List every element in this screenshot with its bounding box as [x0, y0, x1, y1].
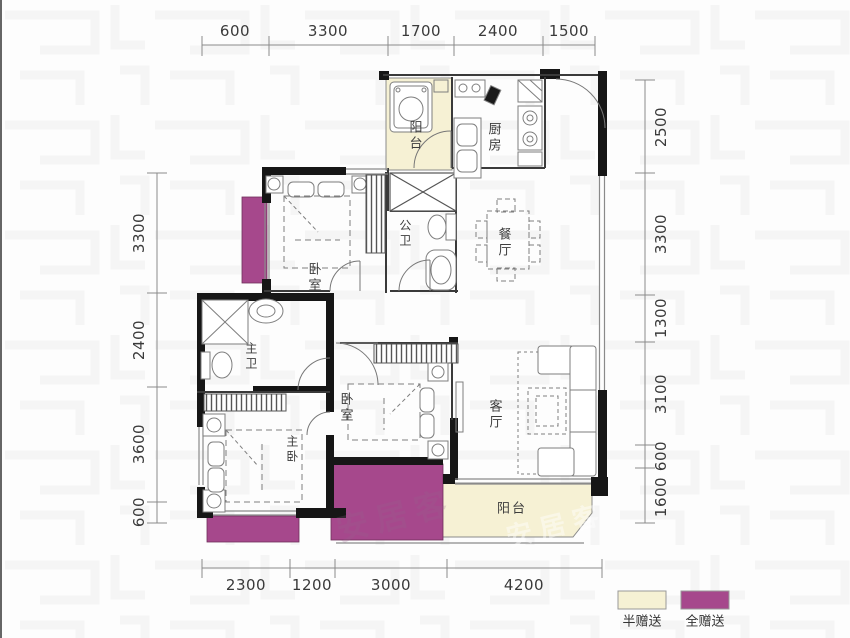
dim-top-1700: 1700: [401, 22, 441, 40]
gift-area-bottom-center: [331, 464, 443, 540]
duct-shaft: [390, 173, 456, 211]
dim-right-1300: 1300: [652, 298, 670, 338]
dim-top-3300: 3300: [308, 22, 348, 40]
dim-bottom-3000: 3000: [371, 576, 411, 594]
dim-left-600: 600: [130, 497, 148, 527]
dim-top-2400: 2400: [478, 22, 518, 40]
dim-left-2400: 2400: [130, 320, 148, 360]
wardrobe-middle-icon: [374, 344, 458, 363]
wardrobe-master-icon: [204, 394, 286, 411]
legend-half-gift-swatch: [618, 591, 666, 609]
legend-full-gift-label: 全赠送: [685, 611, 724, 630]
room-label-public-bath: 公卫: [397, 219, 411, 249]
room-label-bedroom-upper: 卧室: [305, 262, 320, 294]
dim-bottom-4200: 4200: [504, 576, 544, 594]
dim-right-1600: 1600: [652, 477, 670, 517]
dim-right-3300: 3300: [652, 214, 670, 254]
floorplan-drawing: [0, 0, 850, 638]
room-label-bedroom-middle: 卧室: [337, 392, 352, 424]
dim-left-3300: 3300: [130, 213, 148, 253]
stove-icon: [518, 106, 542, 166]
dim-bottom-2300: 2300: [226, 576, 266, 594]
fridge-icon: [518, 80, 542, 102]
room-label-balcony-top: 阳台: [406, 120, 421, 152]
room-label-master-bath: 主卫: [243, 342, 257, 372]
wardrobe-upper-icon: [366, 175, 385, 253]
dim-top-600: 600: [220, 22, 250, 40]
legend-full-gift-swatch: [681, 591, 729, 609]
room-label-kitchen: 厨房: [485, 122, 500, 154]
dim-right-3100: 3100: [652, 374, 670, 414]
dim-top-1500: 1500: [549, 22, 589, 40]
toilet-public-icon: [428, 214, 456, 240]
room-label-balcony-bottom: 阳台: [497, 503, 527, 518]
dim-right-2500: 2500: [652, 107, 670, 147]
dim-left-3600: 3600: [130, 424, 148, 464]
dim-bottom-1200: 1200: [292, 576, 332, 594]
basin-master-icon: [249, 299, 283, 323]
room-label-master-bedroom: 主卧: [284, 435, 298, 465]
dim-right-600: 600: [652, 441, 670, 471]
shower-icon: [202, 300, 248, 344]
toilet-master-icon: [201, 352, 232, 379]
left-edge-line: [0, 0, 2, 638]
bay-window-bottom-left: [207, 516, 299, 542]
floorplan-canvas: 600 3300 1700 2400 1500 3300 2400 3600 6…: [0, 0, 850, 638]
room-label-dining: 餐厅: [495, 227, 510, 259]
legend-half-gift-label: 半赠送: [622, 611, 661, 630]
room-label-living: 客厅: [486, 399, 501, 431]
bay-window-left: [242, 197, 267, 283]
